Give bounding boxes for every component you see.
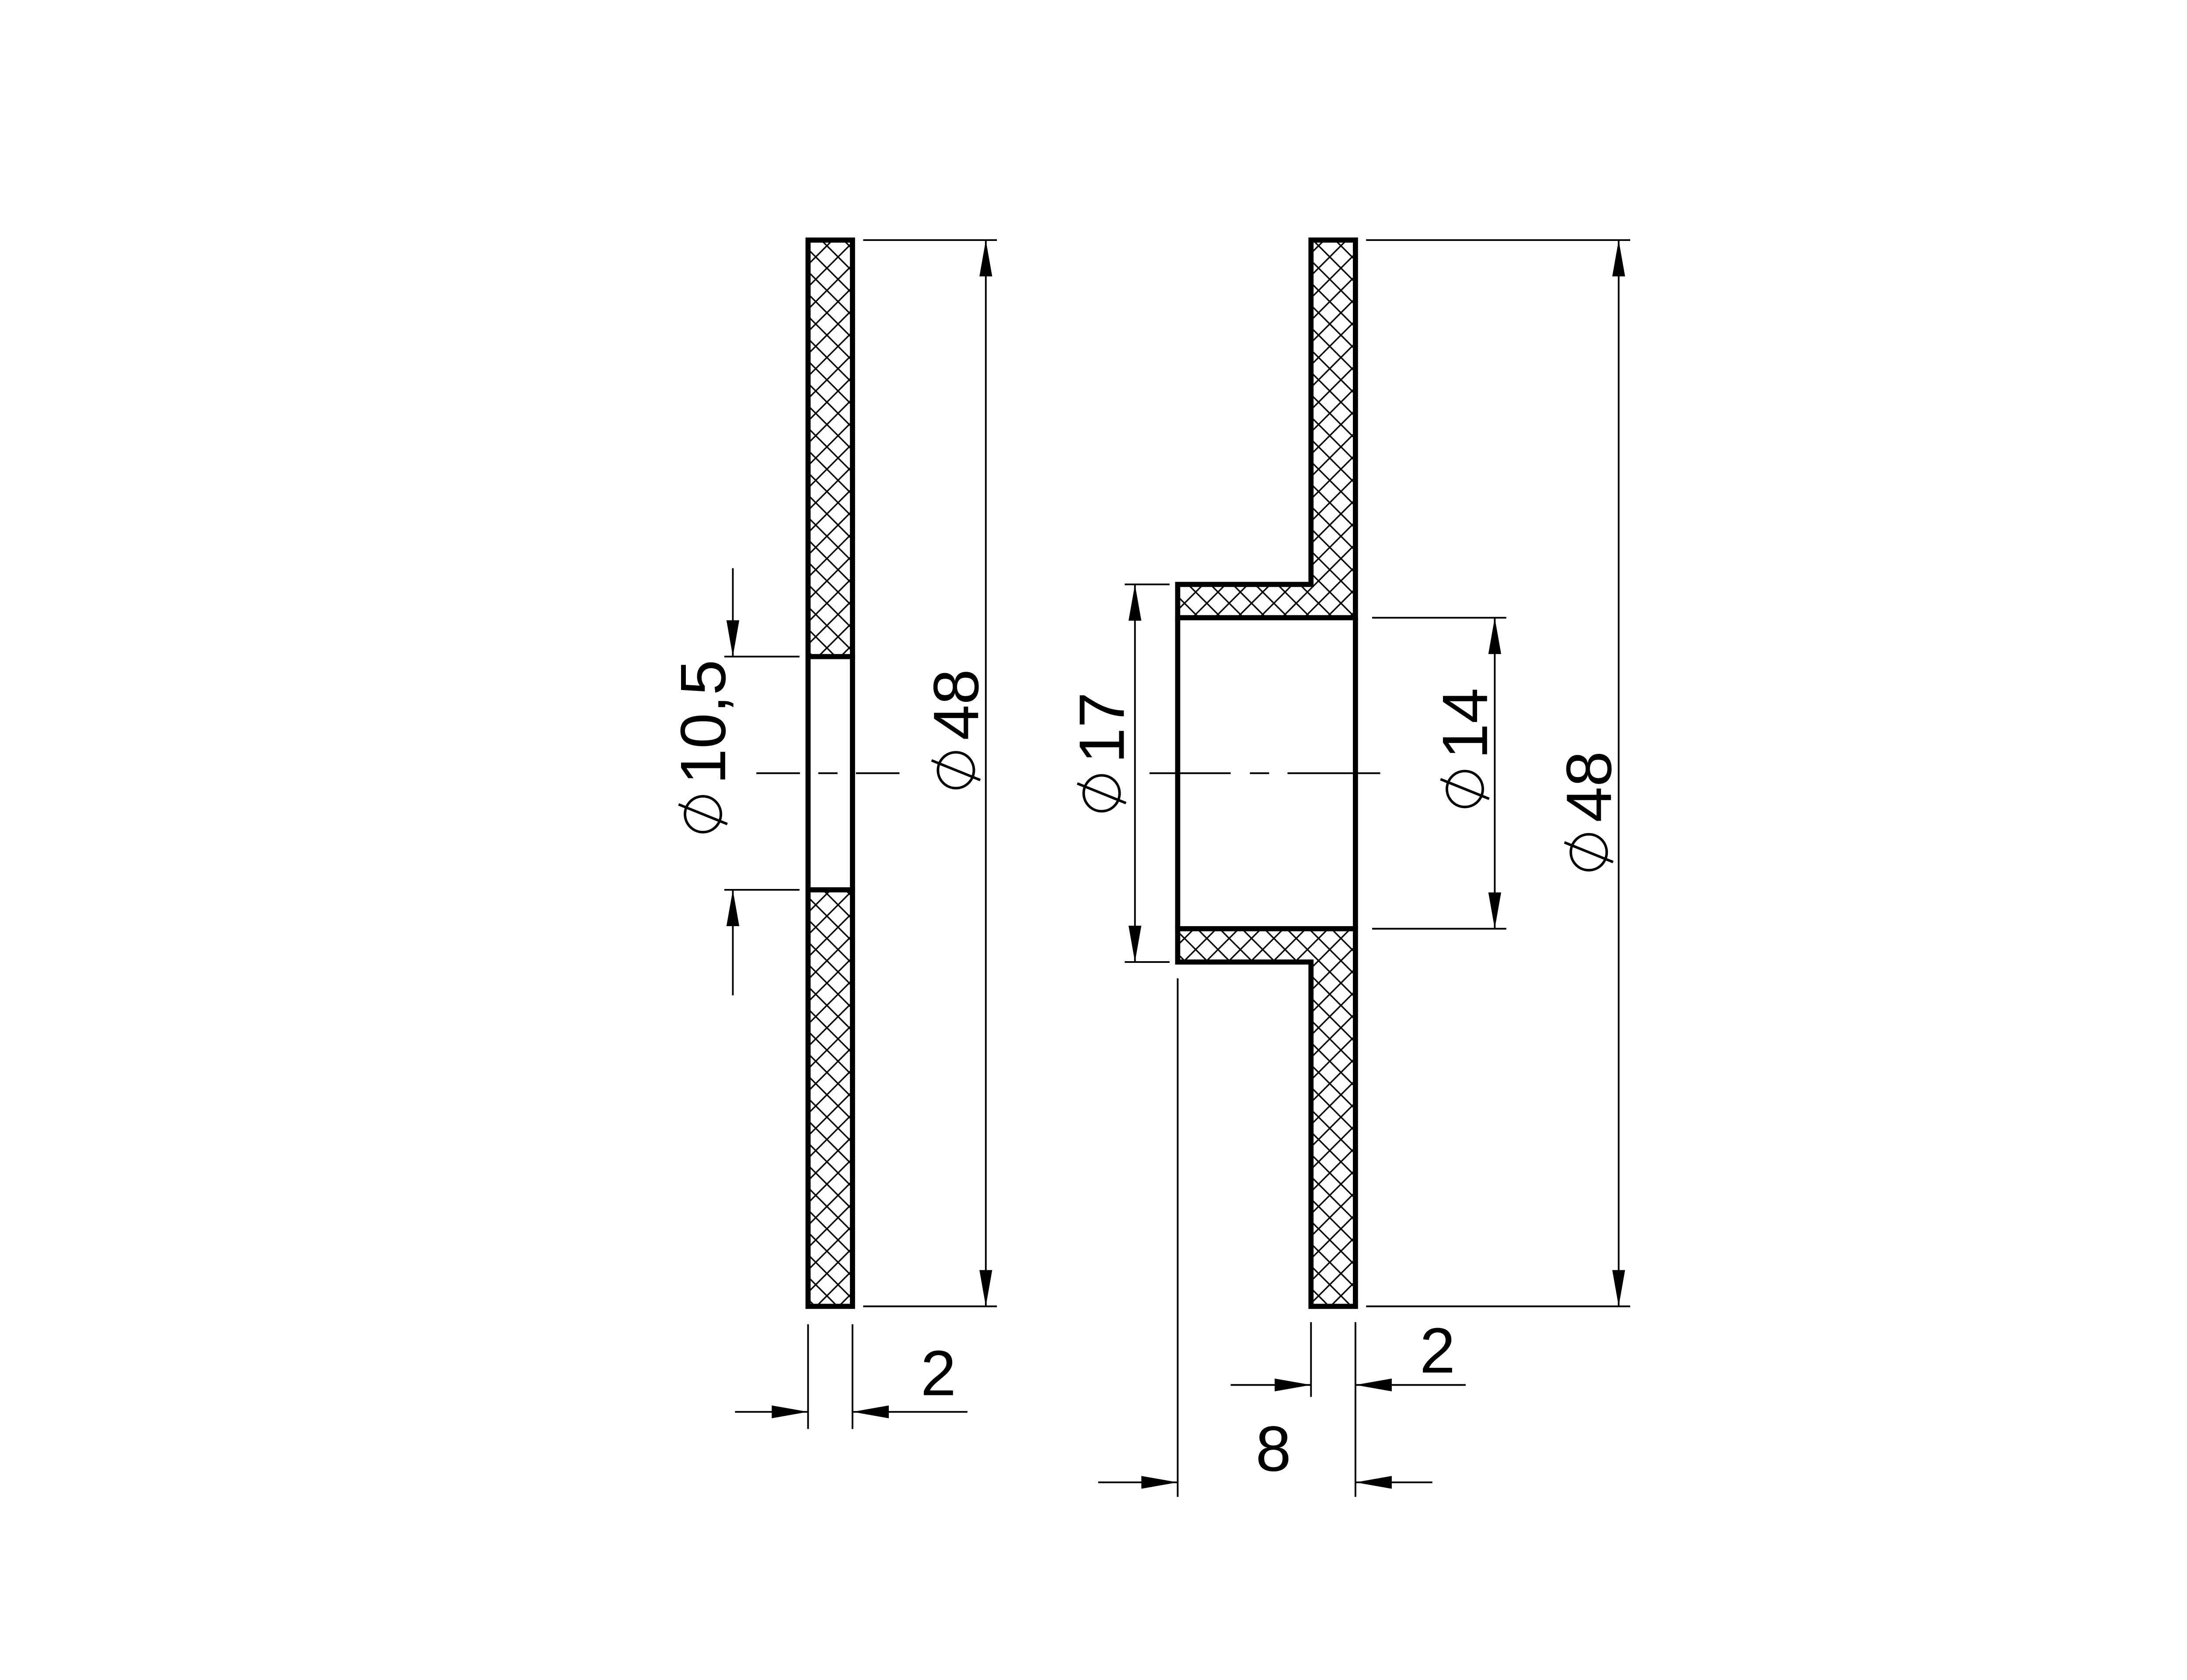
arrowhead-left-icon — [1356, 1476, 1392, 1488]
diameter-symbol-icon — [1565, 834, 1613, 870]
washer-thickness-dimension: 2 — [735, 1324, 967, 1429]
arrowhead-up-icon — [1488, 618, 1501, 654]
bushing-hub-od-label: 17 — [1066, 692, 1138, 811]
arrowhead-down-icon — [979, 1270, 992, 1306]
drawing-sheet: 10,5 48 2 — [0, 0, 2187, 1641]
arrowhead-right-icon — [1275, 1379, 1311, 1391]
bushing-flange-od-value: 48 — [1553, 751, 1625, 823]
arrowhead-down-icon — [1488, 892, 1501, 929]
washer-hatch-bottom — [808, 890, 852, 1307]
flanged-bushing-section-view: 17 14 — [1066, 240, 1630, 1497]
bushing-bore-label: 14 — [1429, 688, 1501, 807]
arrowhead-down-icon — [1128, 926, 1141, 962]
bushing-flange-thickness-value: 2 — [1420, 1315, 1455, 1387]
arrowhead-right-icon — [772, 1405, 808, 1418]
bushing-length-value: 8 — [1256, 1413, 1292, 1485]
arrowhead-up-icon — [979, 240, 992, 276]
bushing-bore-value: 14 — [1429, 688, 1501, 759]
diameter-symbol-icon — [678, 796, 727, 832]
bushing-flange-od-dimension: 48 — [1366, 240, 1630, 1306]
bushing-hatch-top — [1177, 240, 1355, 618]
washer-od-value: 48 — [920, 669, 992, 740]
bushing-flange-od-label: 48 — [1553, 751, 1625, 870]
arrowhead-up-icon — [1612, 240, 1625, 276]
arrowhead-up-icon — [727, 890, 739, 926]
arrowhead-left-icon — [852, 1405, 889, 1418]
arrowhead-down-icon — [727, 620, 739, 657]
diameter-symbol-icon — [1440, 771, 1489, 807]
diameter-symbol-icon — [932, 752, 980, 788]
arrowhead-up-icon — [1128, 584, 1141, 620]
arrowhead-left-icon — [1356, 1379, 1392, 1391]
washer-od-label: 48 — [920, 669, 992, 788]
bushing-hatch-bottom — [1177, 929, 1355, 1307]
technical-drawing-canvas: 10,5 48 2 — [0, 0, 2187, 1641]
bushing-length-dimension: 8 — [1098, 978, 1432, 1497]
washer-bore-value: 10,5 — [667, 659, 739, 784]
bushing-hub-od-value: 17 — [1066, 692, 1138, 763]
washer-bore-dimension: 10,5 — [667, 568, 800, 995]
diameter-symbol-icon — [1077, 775, 1126, 811]
washer-hatch-top — [808, 240, 852, 657]
washer-bore-label: 10,5 — [667, 659, 739, 832]
washer-thickness-value: 2 — [921, 1338, 957, 1409]
washer-section-view: 10,5 48 2 — [667, 240, 997, 1429]
arrowhead-down-icon — [1612, 1270, 1625, 1306]
bushing-bore-dimension: 14 — [1372, 618, 1506, 929]
arrowhead-right-icon — [1141, 1476, 1177, 1488]
